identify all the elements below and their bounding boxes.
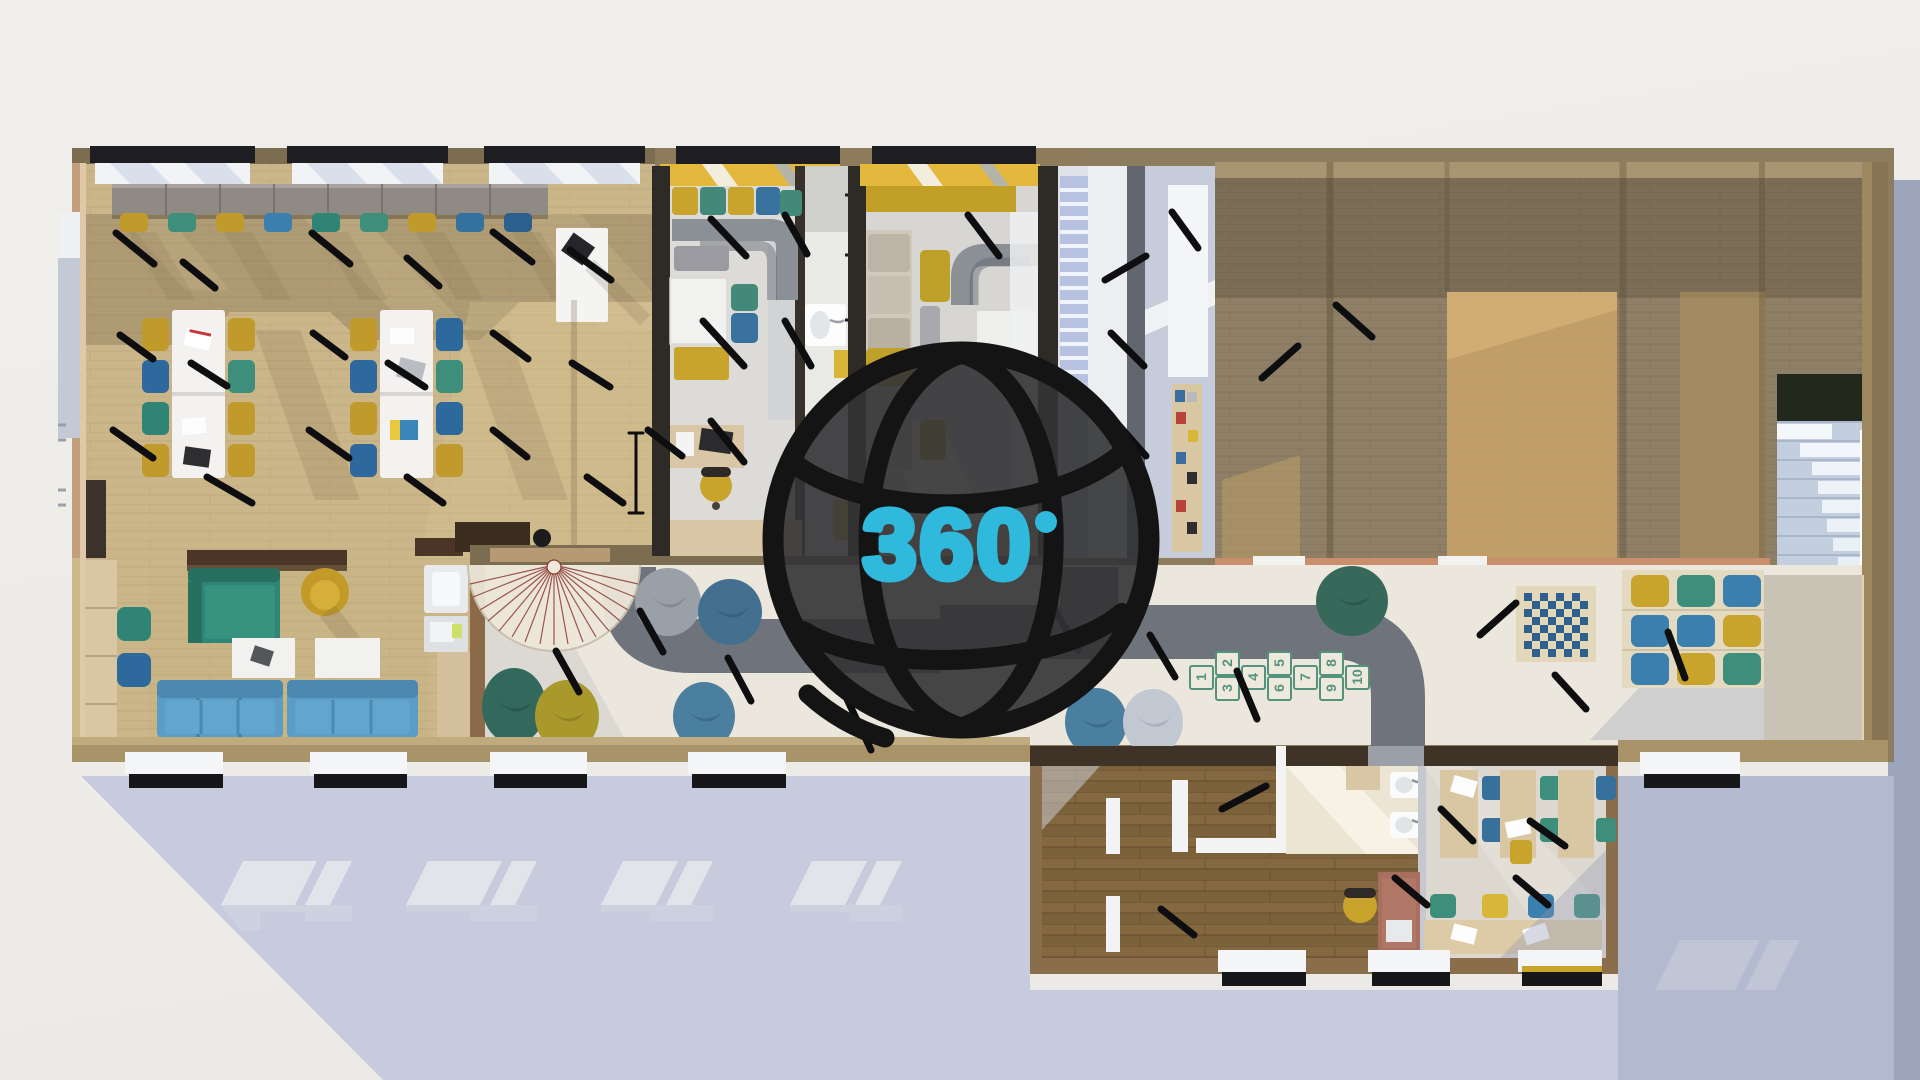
svg-text:4: 4 — [1245, 673, 1261, 681]
svg-text:9: 9 — [1323, 684, 1339, 692]
svg-text:8: 8 — [1323, 659, 1339, 667]
svg-text:2: 2 — [1219, 659, 1235, 667]
svg-text:10: 10 — [1349, 669, 1365, 685]
svg-text:3: 3 — [1219, 684, 1235, 692]
svg-text:5: 5 — [1271, 659, 1287, 667]
svg-text:360: 360 — [863, 490, 1034, 599]
svg-text:6: 6 — [1271, 684, 1287, 692]
svg-text:1: 1 — [1193, 673, 1209, 681]
svg-text:7: 7 — [1297, 673, 1313, 681]
